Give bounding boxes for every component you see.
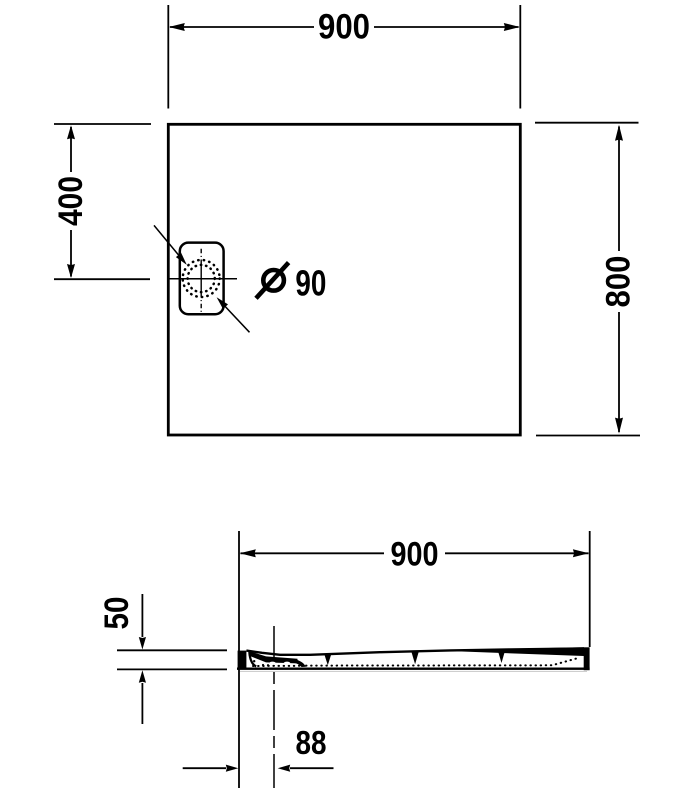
svg-text:50: 50	[98, 597, 136, 630]
svg-text:90: 90	[295, 262, 326, 303]
svg-text:900: 900	[318, 7, 370, 46]
svg-text:400: 400	[52, 176, 90, 226]
svg-text:900: 900	[391, 535, 439, 573]
svg-text:88: 88	[296, 724, 327, 761]
svg-text:800: 800	[599, 256, 637, 308]
